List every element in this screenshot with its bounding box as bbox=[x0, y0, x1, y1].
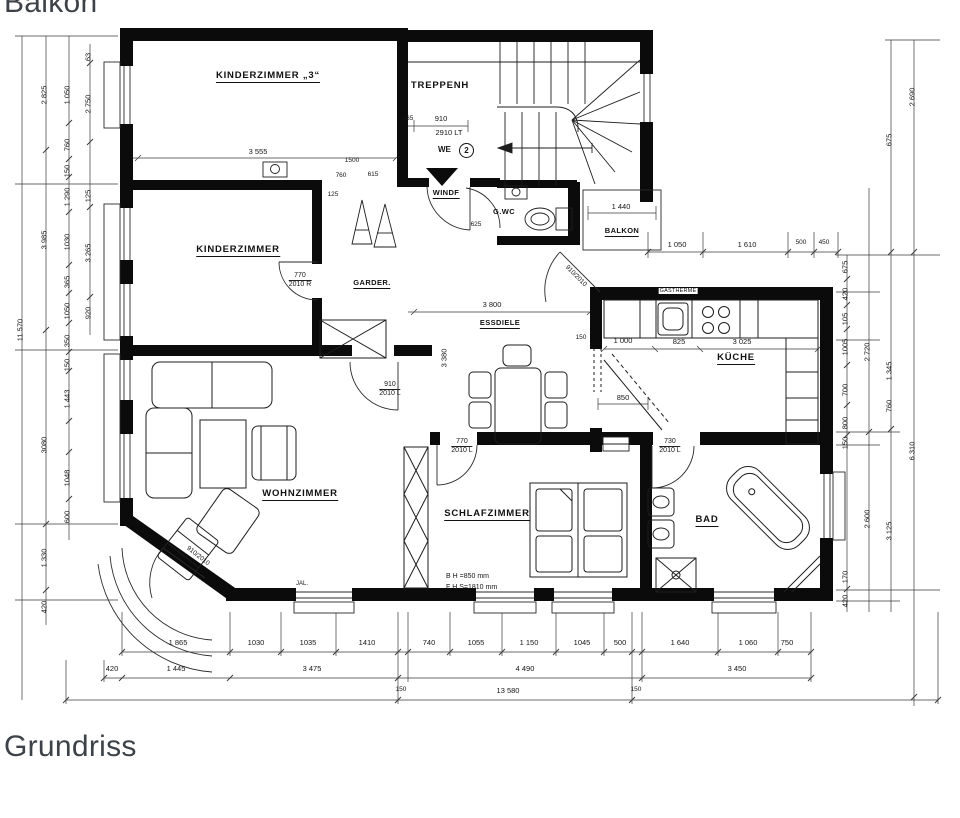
dimension-label: 1 445 bbox=[167, 664, 186, 673]
dimension-label: 150 bbox=[63, 359, 72, 372]
top-caption: Balkon bbox=[4, 0, 98, 20]
we-number: 2 bbox=[459, 143, 474, 158]
dimension-label: 3 555 bbox=[249, 147, 268, 156]
dimension-label: 800 bbox=[841, 417, 850, 430]
dimension-label: 600 bbox=[63, 511, 72, 524]
dimension-label: 760 bbox=[63, 139, 72, 152]
dimension-label: 350 bbox=[63, 335, 72, 348]
dimension-label: 1035 bbox=[300, 638, 317, 647]
dimension-label: 675 bbox=[885, 134, 894, 147]
dimension-label: 1 440 bbox=[612, 202, 631, 211]
dimension-label: 675 bbox=[841, 261, 850, 274]
dimension-label: 3 125 bbox=[885, 522, 894, 541]
dimension-label: 1 610 bbox=[738, 240, 757, 249]
dimension-label: 920 bbox=[84, 307, 93, 320]
dimension-label: 2 750 bbox=[84, 95, 93, 114]
floor-plan-drawing bbox=[0, 0, 960, 818]
dimension-label: 150 bbox=[576, 334, 587, 341]
entrance-dim-width: 910 bbox=[435, 114, 448, 123]
dimension-label: 760 bbox=[885, 400, 894, 413]
dimension-label: 1 345 bbox=[885, 362, 894, 381]
dimension-label: 170 bbox=[841, 571, 850, 584]
entrance-arrow bbox=[426, 168, 458, 186]
dimension-label: 11 570 bbox=[16, 319, 25, 341]
bathroom-fixtures bbox=[648, 460, 820, 592]
dimension-label: 2 720 bbox=[863, 343, 872, 362]
dimension-label: 63 bbox=[84, 53, 93, 61]
dimension-label: 450 bbox=[819, 239, 830, 246]
dimension-label: 365 bbox=[63, 276, 72, 289]
room-label-kinderzimmer3: KINDERZIMMER „3“ bbox=[216, 70, 320, 83]
dimension-label: 105 bbox=[841, 313, 850, 326]
room-label-wohnzimmer: WOHNZIMMER bbox=[262, 488, 338, 501]
bottom-caption: Grundriss bbox=[4, 730, 137, 764]
dimension-label: 3 475 bbox=[303, 664, 322, 673]
dimension-label: 825 bbox=[673, 337, 686, 346]
door-label-bad: 7302010 L bbox=[659, 438, 680, 455]
dimension-label: 1030 bbox=[63, 234, 72, 251]
floor-plan-page: Balkon Grundriss KINDERZIMMER „3“ TREPPE… bbox=[0, 0, 960, 818]
annotation-bh: B H =850 mm bbox=[446, 573, 489, 580]
dimension-label: 1 000 bbox=[614, 336, 633, 345]
dimension-label: 4 490 bbox=[516, 664, 535, 673]
room-label-windfang: WINDF bbox=[433, 188, 460, 199]
dimension-label: 1030 bbox=[248, 638, 265, 647]
dimension-label: 125 bbox=[328, 191, 339, 198]
dimension-label: 1 050 bbox=[63, 86, 72, 105]
dimension-label: 1050 bbox=[63, 303, 72, 320]
dimension-label: 500 bbox=[614, 638, 627, 647]
room-label-garderobe: GARDER. bbox=[353, 278, 390, 289]
dimension-label: 2 690 bbox=[908, 88, 917, 107]
dimension-label: 1 060 bbox=[739, 638, 758, 647]
dimension-label: 1048 bbox=[63, 470, 72, 487]
dimension-label: 3 025 bbox=[733, 337, 752, 346]
room-label-gwc: G.WC bbox=[493, 207, 515, 217]
dimension-label: 1045 bbox=[574, 638, 591, 647]
dimension-label: 3080 bbox=[40, 437, 49, 454]
dimension-label: 740 bbox=[423, 638, 436, 647]
dimension-label: 420 bbox=[106, 664, 119, 673]
room-label-kinderzimmer: KINDERZIMMER bbox=[196, 244, 280, 257]
door-label-wohnzimmer: 9102010 L bbox=[379, 381, 400, 398]
dimension-label: 150 bbox=[396, 686, 407, 693]
kitchen-fittings bbox=[594, 300, 818, 444]
dimension-label: 1 640 bbox=[671, 638, 690, 647]
dimension-label: 420 bbox=[841, 595, 850, 608]
duct-column bbox=[404, 447, 428, 588]
dimension-label: 3 380 bbox=[440, 349, 449, 368]
annotation-gastherme: GASTHERME bbox=[659, 288, 698, 294]
annotation-jal: JAL. bbox=[296, 581, 308, 587]
dimension-label: 1 150 bbox=[520, 638, 539, 647]
dimension-label: 850 bbox=[617, 393, 630, 402]
dimension-label: 700 bbox=[841, 384, 850, 397]
dimension-label: 1 330 bbox=[40, 549, 49, 568]
dimension-label: 1 050 bbox=[668, 240, 687, 249]
closet-box bbox=[320, 320, 386, 358]
bed bbox=[530, 483, 627, 577]
dimension-label: 750 bbox=[781, 638, 794, 647]
dimension-label: 420 bbox=[841, 288, 850, 301]
dimension-label: 150 bbox=[63, 165, 72, 178]
dimension-label: 1 443 bbox=[63, 390, 72, 409]
dimension-label: 500 bbox=[796, 239, 807, 246]
gwc-fixtures bbox=[505, 186, 572, 230]
room-label-balkon: BALKON bbox=[605, 226, 639, 237]
annotation-fhs: F H S=1810 mm bbox=[446, 584, 497, 591]
dimension-label: 1410 bbox=[359, 638, 376, 647]
dimension-label: 150 bbox=[841, 437, 850, 450]
dimension-label: 2 825 bbox=[40, 86, 49, 105]
dimension-label: 3 265 bbox=[84, 244, 93, 263]
heater-box bbox=[603, 437, 629, 451]
dimension-label: 6 310 bbox=[908, 442, 917, 461]
entrance-door-label: 2910 LT bbox=[436, 128, 463, 137]
dimension-label: 760 bbox=[336, 172, 347, 179]
garderobe-racks bbox=[352, 200, 396, 247]
dimension-label: 13 580 bbox=[497, 686, 520, 695]
dimension-label: 615 bbox=[368, 171, 379, 178]
windfang-door-width: 625 bbox=[471, 221, 482, 228]
dimension-label: 1 865 bbox=[169, 638, 188, 647]
door-label-kinderzimmer: 7702010 R bbox=[289, 272, 312, 289]
room-label-treppenhaus: TREPPENH bbox=[411, 80, 469, 92]
dimension-label: 420 bbox=[40, 601, 49, 614]
we-label: WE bbox=[438, 145, 451, 154]
dimension-label: 125 bbox=[84, 190, 93, 203]
room-label-schlafzimmer: SCHLAFZIMMER bbox=[444, 508, 530, 521]
door-label-schlafzimmer: 7702010 L bbox=[451, 438, 472, 455]
dining-set bbox=[469, 345, 567, 444]
room-label-essdiele: ESSDIELE bbox=[480, 318, 520, 329]
dimension-label: 1500 bbox=[345, 157, 359, 164]
dimension-label: 3 450 bbox=[728, 664, 747, 673]
entrance-dim-small: 365 bbox=[403, 115, 414, 122]
dimension-label: 1005 bbox=[841, 339, 850, 356]
dimension-label: 2 600 bbox=[863, 510, 872, 529]
dimension-label: 150 bbox=[631, 686, 642, 693]
room-label-kueche: KÜCHE bbox=[717, 352, 755, 365]
dimension-label: 1055 bbox=[468, 638, 485, 647]
dimension-label: 3 985 bbox=[40, 231, 49, 250]
kinderzimmer3-basin bbox=[263, 162, 287, 177]
room-label-bad: BAD bbox=[696, 514, 719, 527]
dimension-label: 3 800 bbox=[483, 300, 502, 309]
dimension-label: 1 290 bbox=[63, 188, 72, 207]
